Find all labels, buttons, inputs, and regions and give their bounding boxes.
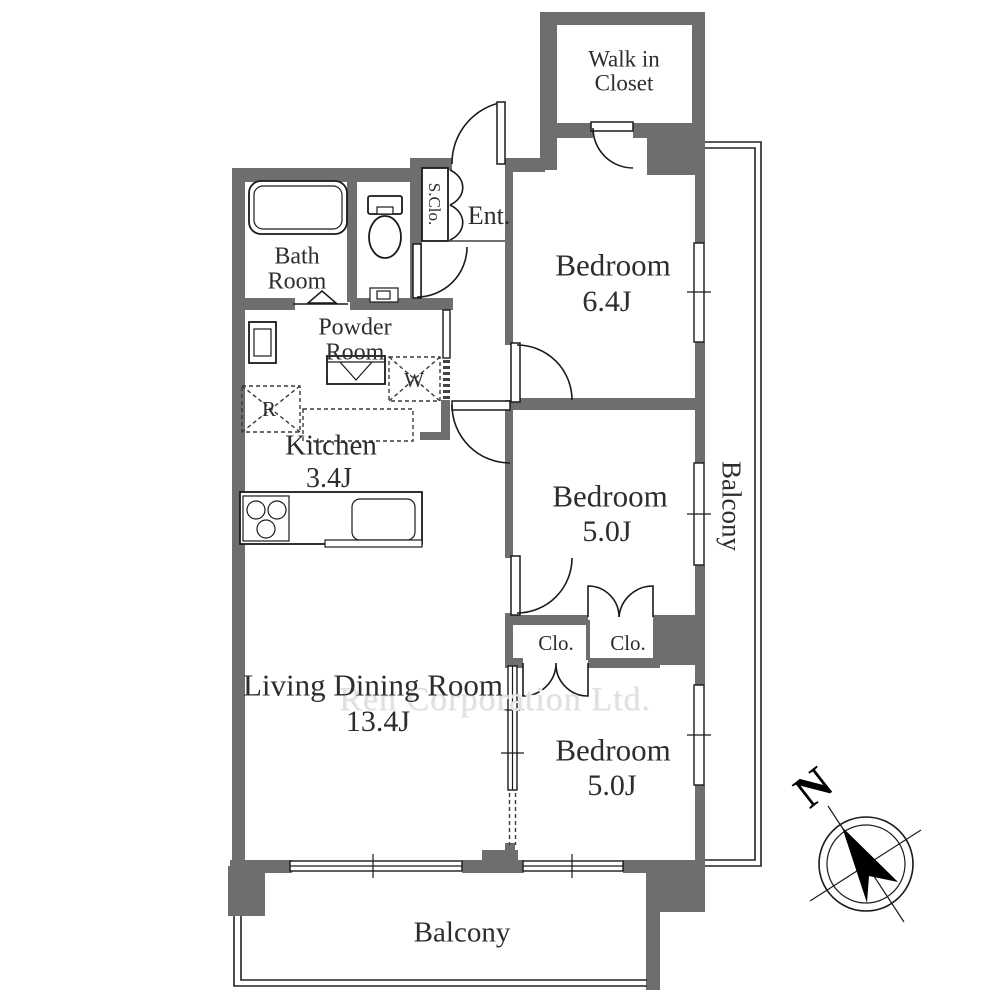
counter-lip <box>325 540 422 547</box>
washer-label: W <box>404 369 424 391</box>
powder-slide-door <box>443 310 450 358</box>
entry-door-leaf <box>497 102 505 164</box>
room-label-entrance: Ent. <box>468 202 511 230</box>
compass <box>810 806 921 922</box>
toilet-door-arc <box>417 247 467 297</box>
bedroom-middle-door-leaf <box>511 556 520 615</box>
room-label-powder: Powder Room <box>308 316 403 367</box>
bedroom-middle-door-arc <box>517 558 572 613</box>
room-label-living-dining: Living Dining Room <box>243 670 503 703</box>
floor-plan-drawing <box>0 0 1000 1000</box>
hall-ldk-door-arc <box>452 405 510 463</box>
toilet-bowl <box>369 216 401 258</box>
wic-door-arc <box>593 128 633 168</box>
room-size-bedroom-bottom: 5.0J <box>587 770 636 802</box>
toilet-door-leaf <box>413 244 421 298</box>
room-label-bedroom-middle: Bedroom <box>552 481 667 514</box>
hall-ldk-door-leaf <box>452 401 510 410</box>
room-size-kitchen: 3.4J <box>306 464 352 494</box>
toilet-shelf-inner <box>377 291 390 299</box>
room-label-balcony-side: Balcony <box>717 461 746 551</box>
room-label-shoe-closet: S.Clo. <box>425 183 443 226</box>
room-label-bath: Bath Room <box>257 245 337 296</box>
bedroom-top-door-leaf <box>511 343 520 402</box>
powder-cabinet-inner <box>254 329 271 356</box>
room-label-balcony-bottom: Balcony <box>414 918 511 949</box>
room-label-bedroom-top: Bedroom <box>555 250 670 283</box>
bathtub-inner <box>254 186 342 229</box>
compass-needle <box>842 827 898 903</box>
room-size-bedroom-top: 6.4J <box>582 286 631 318</box>
wic-door-leaf <box>591 122 633 131</box>
room-size-living-dining: 13.4J <box>346 706 410 738</box>
entry-door-arc <box>452 102 504 164</box>
shoe-closet-bifold <box>450 170 463 240</box>
room-label-closet-left: Clo. <box>538 632 574 654</box>
refrigerator-label: R <box>262 398 276 420</box>
room-label-closet-right: Clo. <box>610 632 646 654</box>
bedroom-top-door-arc <box>517 345 572 400</box>
room-label-walk-in-closet: Walk in Closet <box>569 48 679 97</box>
room-size-bedroom-middle: 5.0J <box>582 516 631 548</box>
kitchen-sink <box>352 499 415 540</box>
floor-plan: Ren Corporation Ltd. Walk in Closet Bedr… <box>0 0 1000 1000</box>
room-label-kitchen: Kitchen <box>285 431 377 462</box>
closet-right-bifold <box>588 586 653 617</box>
toilet-handle <box>377 207 393 214</box>
room-label-bedroom-bottom: Bedroom <box>555 735 670 768</box>
